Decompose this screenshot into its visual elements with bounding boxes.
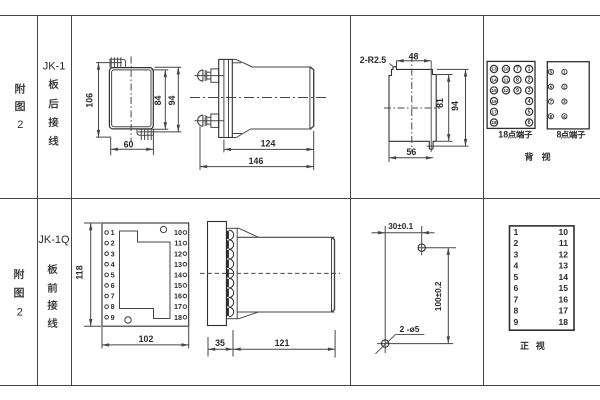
- svg-text:13: 13: [491, 67, 497, 73]
- svg-text:4: 4: [111, 260, 115, 269]
- svg-text:5: 5: [111, 270, 115, 279]
- svg-text:2: 2: [528, 77, 531, 83]
- svg-text:10: 10: [174, 228, 182, 237]
- svg-text:146: 146: [249, 156, 264, 166]
- svg-text:35: 35: [215, 338, 225, 348]
- svg-text:12: 12: [174, 249, 182, 258]
- svg-text:18: 18: [174, 313, 182, 322]
- svg-text:3: 3: [111, 249, 115, 258]
- svg-text:2: 2: [17, 307, 23, 319]
- svg-text:1: 1: [528, 67, 531, 73]
- svg-text:9: 9: [111, 313, 115, 322]
- svg-text:17: 17: [491, 110, 497, 116]
- svg-text:5: 5: [514, 272, 519, 282]
- svg-text:18: 18: [491, 120, 497, 126]
- svg-text:100±0.2: 100±0.2: [434, 281, 443, 311]
- svg-text:124: 124: [261, 139, 276, 149]
- svg-text:81: 81: [435, 98, 445, 108]
- svg-text:JK-1Q: JK-1Q: [38, 234, 70, 246]
- svg-text:2: 2: [17, 119, 23, 131]
- svg-text:2: 2: [111, 239, 115, 248]
- svg-text:106: 106: [84, 93, 94, 108]
- svg-text:13: 13: [174, 260, 182, 269]
- svg-text:11: 11: [503, 77, 508, 83]
- svg-text:12: 12: [503, 88, 509, 94]
- svg-text:5: 5: [528, 110, 531, 116]
- svg-text:2-R2.5: 2-R2.5: [360, 55, 387, 65]
- svg-text:15: 15: [491, 88, 497, 94]
- svg-text:6: 6: [514, 283, 519, 293]
- svg-text:121: 121: [275, 338, 290, 348]
- svg-text:60: 60: [124, 140, 134, 150]
- svg-text:3: 3: [514, 249, 519, 259]
- svg-text:JK-1: JK-1: [43, 61, 66, 73]
- svg-text:16: 16: [174, 292, 182, 301]
- svg-text:8: 8: [556, 130, 561, 140]
- svg-text:118: 118: [75, 265, 85, 279]
- svg-text:11: 11: [174, 239, 182, 248]
- svg-text:6: 6: [528, 120, 531, 126]
- svg-text:16: 16: [491, 99, 497, 105]
- svg-text:2 -ø5: 2 -ø5: [399, 324, 419, 334]
- svg-text:9: 9: [516, 88, 519, 94]
- svg-text:7: 7: [111, 292, 115, 301]
- svg-text:14: 14: [491, 77, 497, 83]
- svg-text:8: 8: [111, 302, 115, 311]
- svg-text:56: 56: [407, 147, 417, 157]
- svg-text:15: 15: [558, 283, 568, 293]
- svg-text:11: 11: [559, 238, 568, 248]
- svg-text:12: 12: [558, 249, 568, 259]
- svg-text:7: 7: [516, 67, 519, 73]
- svg-text:6: 6: [111, 281, 115, 290]
- svg-text:10: 10: [558, 227, 568, 237]
- svg-text:17: 17: [558, 306, 568, 316]
- svg-text:10: 10: [503, 67, 509, 73]
- svg-text:9: 9: [514, 317, 519, 327]
- svg-text:8: 8: [514, 306, 519, 316]
- svg-text:94: 94: [450, 101, 460, 111]
- svg-text:4: 4: [514, 261, 519, 271]
- svg-text:94: 94: [167, 96, 177, 106]
- svg-text:7: 7: [514, 294, 519, 304]
- svg-text:102: 102: [139, 334, 154, 344]
- svg-text:1: 1: [514, 227, 519, 237]
- svg-text:4: 4: [528, 99, 531, 105]
- svg-text:14: 14: [558, 272, 568, 282]
- svg-text:8: 8: [516, 77, 519, 83]
- svg-text:18: 18: [498, 130, 508, 140]
- svg-text:48: 48: [409, 51, 419, 61]
- svg-text:14: 14: [174, 270, 182, 279]
- svg-text:18: 18: [558, 317, 568, 327]
- svg-text:16: 16: [558, 294, 568, 304]
- svg-text:1: 1: [111, 228, 115, 237]
- svg-text:15: 15: [174, 281, 182, 290]
- svg-text:30±0.1: 30±0.1: [388, 222, 413, 231]
- svg-text:3: 3: [528, 88, 531, 94]
- svg-text:2: 2: [514, 238, 519, 248]
- svg-text:84: 84: [153, 96, 163, 106]
- svg-text:13: 13: [558, 261, 568, 271]
- svg-text:17: 17: [174, 302, 182, 311]
